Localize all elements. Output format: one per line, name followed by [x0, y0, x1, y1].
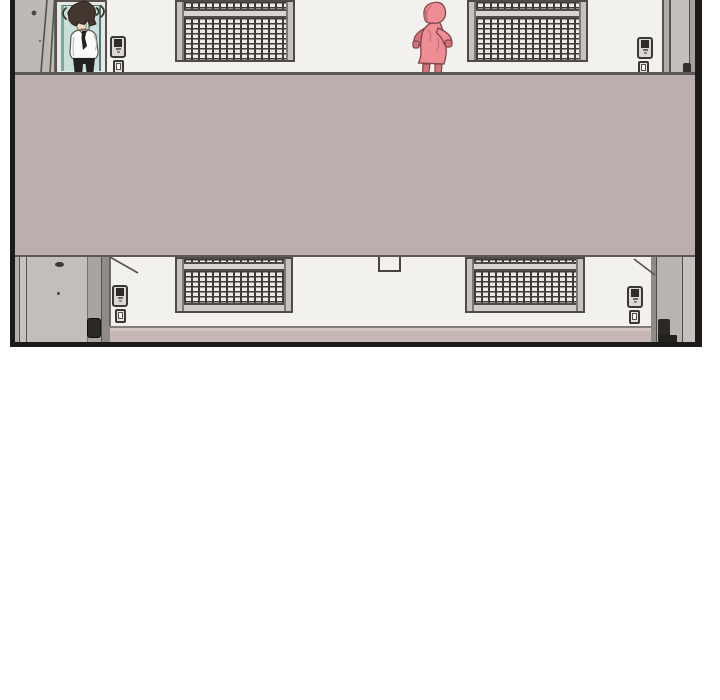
- intercom-speaker: [634, 301, 637, 303]
- peephole: [55, 262, 64, 267]
- window-rail: [184, 262, 284, 271]
- upper-left-pillar: [15, 0, 55, 75]
- corner-perspective-line-left: [110, 257, 138, 273]
- intercom-panel-lower-right: [627, 286, 643, 308]
- window-rail: [476, 9, 579, 18]
- runner-near-fist: [445, 40, 452, 47]
- motion-mark-right-inner: [97, 8, 99, 15]
- barred-window-upper-left: [175, 0, 295, 62]
- intercom-speaker: [117, 51, 120, 53]
- window-grille: [474, 2, 581, 60]
- window-sill: [184, 303, 284, 311]
- intercom-button: [633, 298, 638, 300]
- intercom-speaker: [644, 52, 647, 54]
- window-grille: [472, 259, 578, 311]
- man-hair: [69, 1, 96, 26]
- grille-bars-top: [184, 2, 286, 9]
- lower-walkway-strip: [110, 326, 651, 342]
- doorbell-dot: [57, 292, 60, 295]
- barred-window-upper-right: [467, 0, 588, 62]
- intercom-screen: [631, 289, 639, 297]
- intercom-screen: [114, 39, 122, 47]
- grille-bars: [474, 271, 576, 303]
- intercom-button: [116, 48, 121, 50]
- door-edge-lower-right: [651, 257, 695, 342]
- barred-window-lower-left: [175, 257, 293, 313]
- intercom-panel-upper-right: [637, 37, 653, 59]
- intercom-speaker: [119, 300, 122, 302]
- intercom-panel-lower-left: [112, 285, 128, 307]
- walkway-slab: [15, 72, 695, 257]
- motion-mark-right: [101, 6, 104, 17]
- runner-far-fist: [413, 41, 419, 48]
- outlet-lower-left: [115, 309, 126, 323]
- window-sill: [474, 303, 576, 311]
- comic-page: [0, 0, 720, 700]
- grille-bars: [184, 271, 284, 303]
- intercom-button: [118, 297, 123, 299]
- intercom-screen: [116, 288, 124, 296]
- running-figure: [407, 0, 465, 76]
- runner-jacket: [419, 21, 447, 64]
- grille-bars: [184, 18, 286, 60]
- intercom-screen: [641, 40, 649, 48]
- intercom-button: [643, 49, 648, 51]
- window-grille: [182, 2, 288, 60]
- door-handle-base: [658, 335, 677, 342]
- barred-window-lower-right: [465, 257, 585, 313]
- motion-mark-left: [63, 8, 66, 19]
- standing-man-figure: [57, 0, 113, 77]
- door-handle: [87, 318, 101, 338]
- window-rail: [184, 9, 286, 18]
- window-grille: [182, 259, 286, 311]
- grille-bars: [476, 18, 579, 60]
- upper-right-pillar: [662, 0, 695, 75]
- closed-door-lower-left: [15, 257, 110, 342]
- wall-recess: [378, 257, 401, 272]
- window-rail: [474, 262, 576, 271]
- outlet-lower-right: [629, 310, 640, 324]
- comic-panel: [10, 0, 702, 347]
- grille-bars-top: [476, 2, 579, 9]
